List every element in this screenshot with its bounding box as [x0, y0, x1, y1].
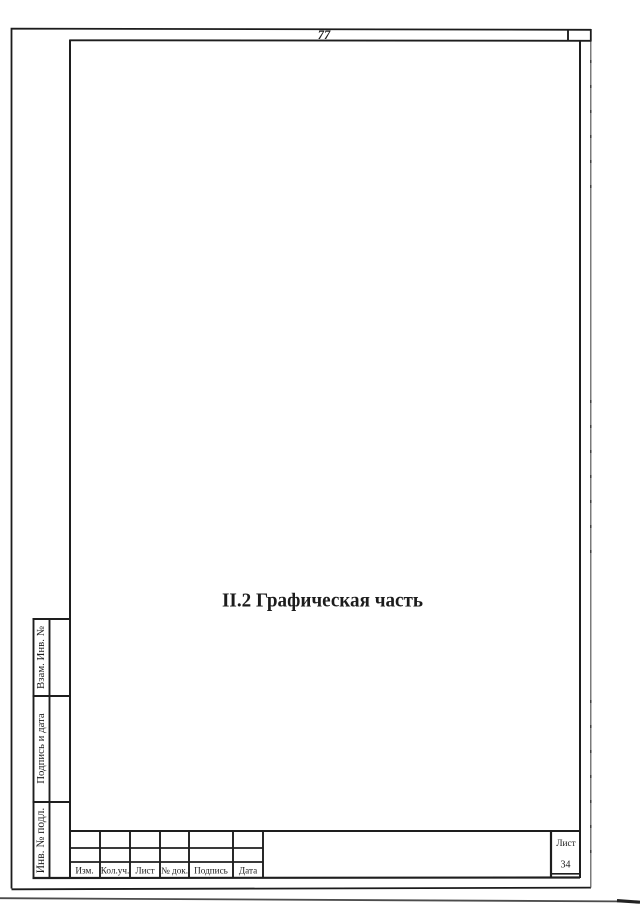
svg-text:Дата: Дата: [239, 866, 257, 876]
svg-text:77: 77: [318, 28, 331, 42]
svg-text:Лист: Лист: [135, 866, 154, 876]
svg-text:Подпись: Подпись: [194, 866, 228, 876]
svg-text:II.2 Графическая часть: II.2 Графическая часть: [222, 590, 423, 612]
svg-text:№ док.: № док.: [161, 866, 188, 876]
svg-text:Лист: Лист: [556, 839, 575, 849]
svg-text:Подпись и дата: Подпись и дата: [35, 713, 47, 784]
svg-text:34: 34: [561, 860, 571, 871]
svg-text:Инв. № подл.: Инв. № подл.: [35, 808, 47, 874]
svg-text:Кол.уч.: Кол.уч.: [101, 866, 130, 876]
svg-text:Взам. Инв. №: Взам. Инв. №: [35, 626, 47, 689]
svg-text:Изм.: Изм.: [75, 866, 93, 876]
